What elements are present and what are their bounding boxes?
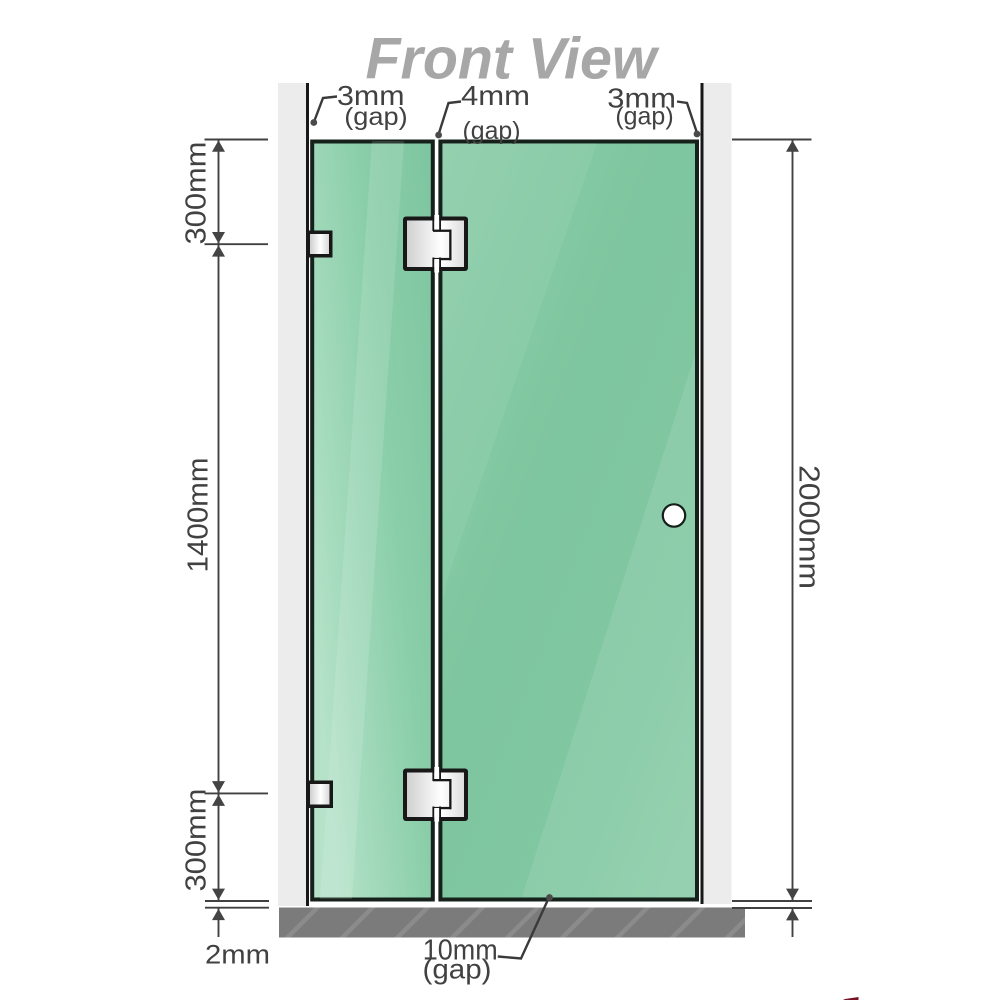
svg-text:(gap): (gap)	[344, 103, 408, 131]
svg-text:2mm: 2mm	[205, 940, 270, 970]
svg-text:(gap): (gap)	[615, 103, 673, 131]
svg-text:(gap): (gap)	[423, 954, 492, 985]
svg-text:4mm: 4mm	[461, 80, 530, 111]
svg-text:2000mm: 2000mm	[793, 465, 825, 589]
svg-text:(gap): (gap)	[463, 117, 521, 145]
svg-text:300mm: 300mm	[181, 142, 213, 245]
svg-text:1400mm: 1400mm	[183, 458, 215, 573]
svg-text:300mm: 300mm	[181, 789, 213, 892]
